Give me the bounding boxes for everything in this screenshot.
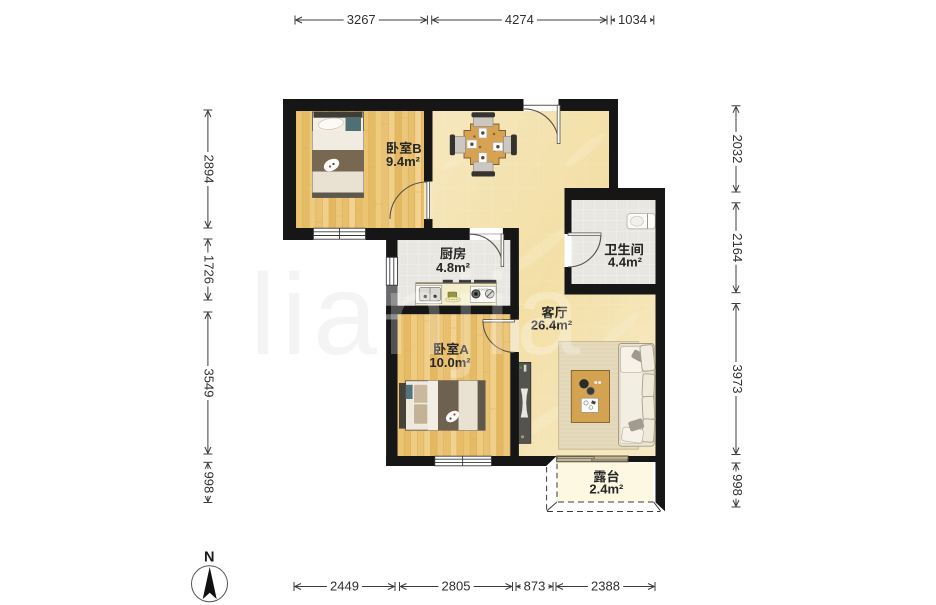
svg-text:9.4m²: 9.4m² bbox=[386, 154, 421, 169]
svg-text:998: 998 bbox=[730, 474, 745, 496]
svg-text:2894: 2894 bbox=[202, 155, 217, 184]
svg-text:2388: 2388 bbox=[591, 579, 620, 594]
svg-text:2164: 2164 bbox=[730, 233, 745, 262]
svg-text:4274: 4274 bbox=[505, 12, 534, 27]
svg-text:1726: 1726 bbox=[202, 255, 217, 284]
svg-text:3549: 3549 bbox=[202, 369, 217, 398]
svg-text:2805: 2805 bbox=[442, 579, 471, 594]
svg-text:lianjia: lianjia bbox=[250, 251, 586, 379]
svg-text:873: 873 bbox=[524, 579, 546, 594]
svg-text:3973: 3973 bbox=[730, 365, 745, 394]
svg-text:2449: 2449 bbox=[330, 579, 359, 594]
svg-text:4.4m²: 4.4m² bbox=[608, 255, 643, 270]
svg-text:1034: 1034 bbox=[618, 12, 647, 27]
svg-text:998: 998 bbox=[202, 472, 217, 494]
svg-text:2.4m²: 2.4m² bbox=[589, 482, 624, 497]
svg-text:N: N bbox=[204, 550, 214, 566]
svg-text:3267: 3267 bbox=[347, 12, 376, 27]
svg-text:2032: 2032 bbox=[730, 134, 745, 163]
